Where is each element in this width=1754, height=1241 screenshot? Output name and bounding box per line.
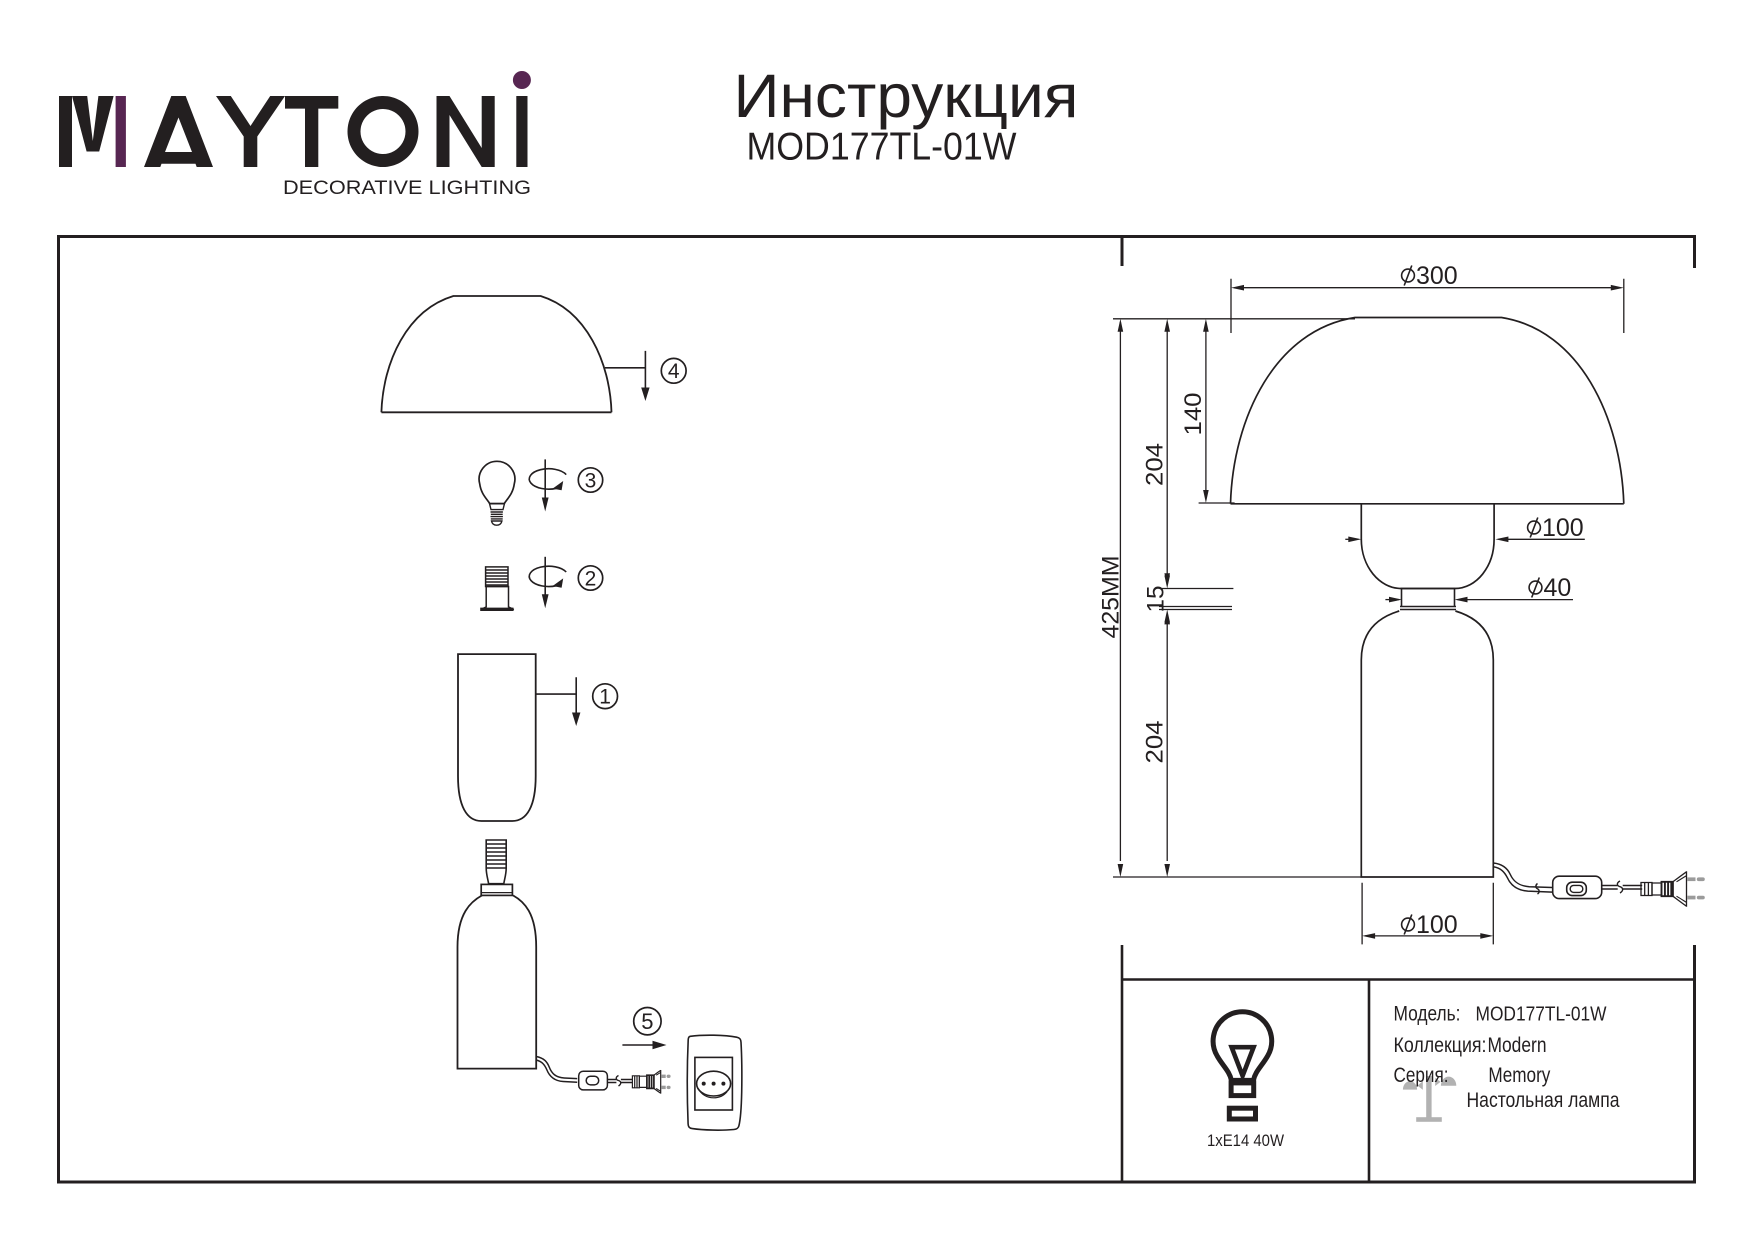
svg-text:140: 140 bbox=[1180, 393, 1207, 436]
svg-text:Настольная лампа: Настольная лампа bbox=[1467, 1089, 1620, 1112]
svg-text:5: 5 bbox=[641, 1009, 653, 1034]
svg-text:3: 3 bbox=[585, 469, 597, 492]
svg-text:4: 4 bbox=[668, 360, 680, 383]
svg-text:MOD177TL-01W: MOD177TL-01W bbox=[747, 126, 1017, 169]
svg-text:2: 2 bbox=[585, 567, 597, 590]
svg-text:Инструкция: Инструкция bbox=[734, 62, 1079, 130]
svg-text:300: 300 bbox=[1416, 262, 1458, 290]
svg-text:Modern: Modern bbox=[1488, 1034, 1547, 1057]
svg-text:Серия:: Серия: bbox=[1394, 1064, 1449, 1087]
svg-text:DECORATIVE LIGHTING: DECORATIVE LIGHTING bbox=[283, 178, 531, 199]
svg-text:MOD177TL-01W: MOD177TL-01W bbox=[1476, 1003, 1608, 1026]
svg-text:15: 15 bbox=[1142, 586, 1169, 613]
svg-text:40: 40 bbox=[1544, 574, 1572, 602]
svg-text:204: 204 bbox=[1141, 721, 1168, 764]
svg-text:1xE14 40W: 1xE14 40W bbox=[1207, 1132, 1284, 1150]
svg-text:Модель:: Модель: bbox=[1394, 1003, 1461, 1026]
svg-text:1: 1 bbox=[599, 686, 611, 709]
svg-text:425MM: 425MM bbox=[1098, 556, 1125, 639]
svg-text:100: 100 bbox=[1542, 514, 1584, 542]
svg-text:Memory: Memory bbox=[1488, 1064, 1550, 1087]
svg-text:Коллекция:: Коллекция: bbox=[1394, 1034, 1487, 1057]
svg-text:204: 204 bbox=[1141, 443, 1168, 486]
svg-text:100: 100 bbox=[1416, 911, 1458, 939]
